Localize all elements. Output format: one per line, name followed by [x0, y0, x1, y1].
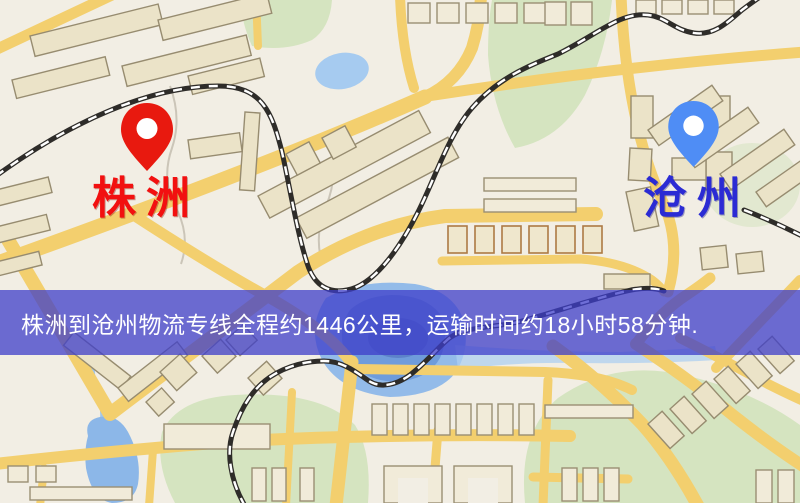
- map-view: 株洲到沧州物流专线全程约1446公里，运输时间约18小时58分钟. 株洲 沧州: [0, 0, 800, 503]
- route-info-text: 株洲到沧州物流专线全程约1446公里，运输时间约18小时58分钟.: [0, 306, 698, 340]
- destination-pin-icon: [666, 100, 722, 170]
- map-background: [0, 0, 800, 503]
- origin-label: 株洲: [92, 177, 200, 221]
- destination-label: 沧州: [643, 177, 751, 221]
- origin-pin-icon: [119, 102, 175, 172]
- route-info-banner: 株洲到沧州物流专线全程约1446公里，运输时间约18小时58分钟.: [0, 290, 800, 355]
